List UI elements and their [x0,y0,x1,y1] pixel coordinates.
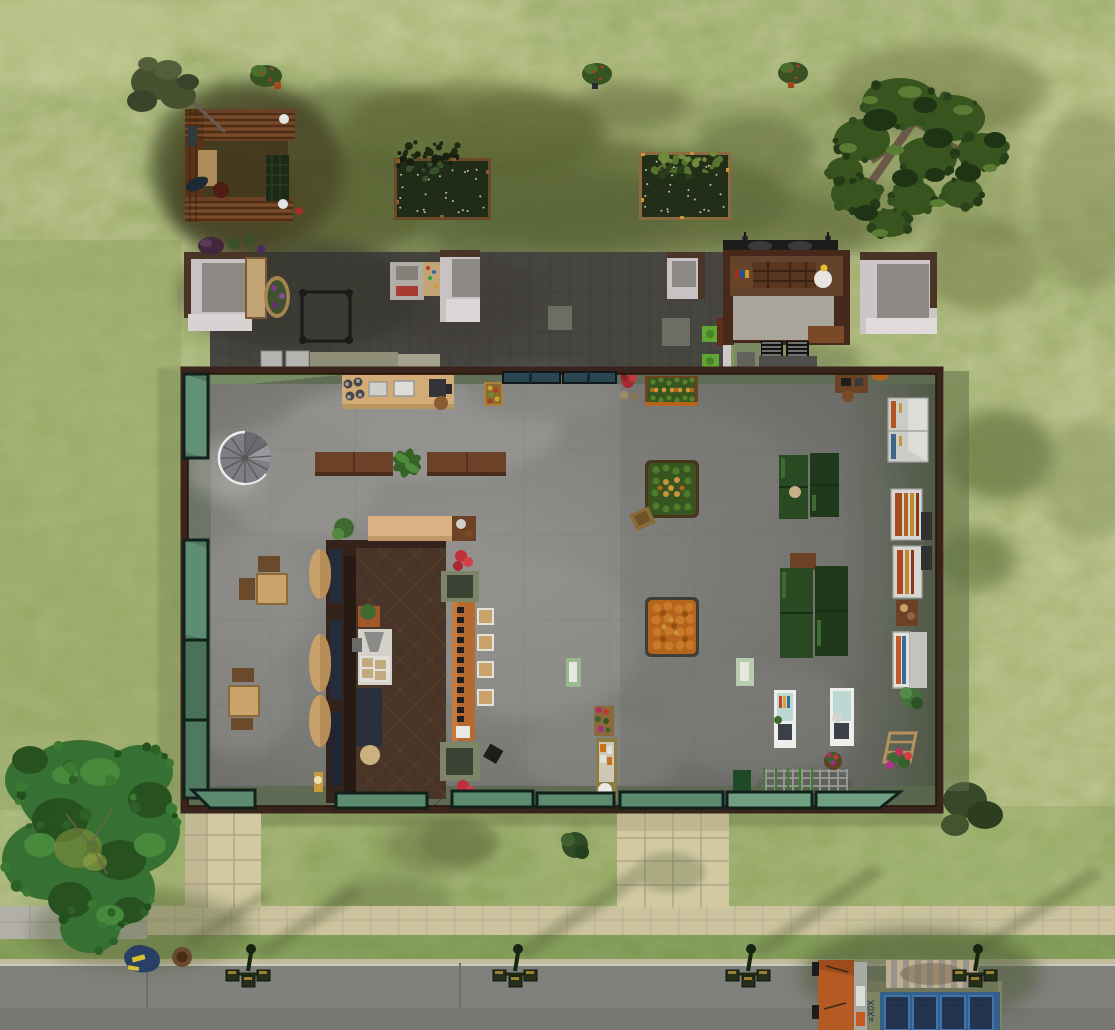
svg-text:≡X0X: ≡X0X [866,1000,876,1022]
